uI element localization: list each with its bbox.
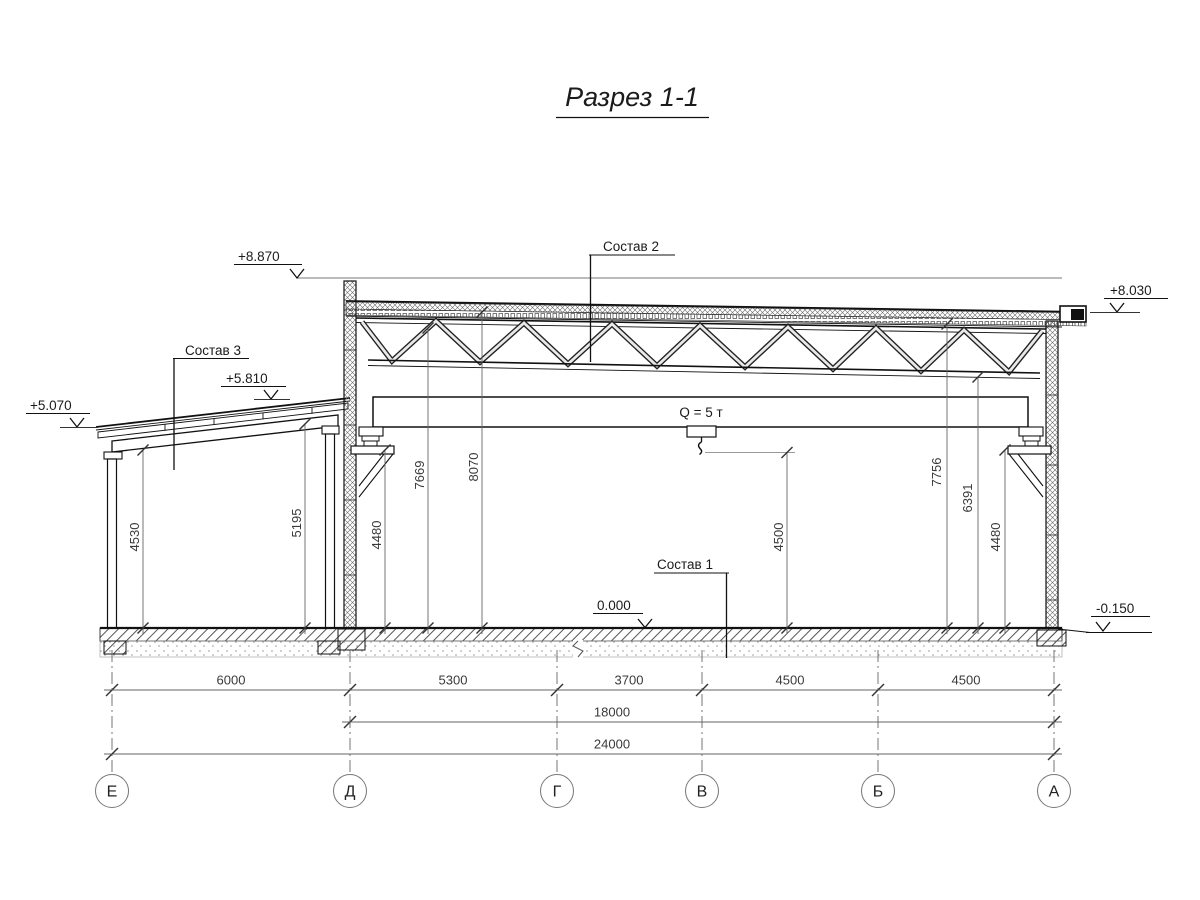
axis-bubble-v: В bbox=[686, 775, 719, 808]
elevation-mark-eave-right: +8.030 bbox=[1090, 283, 1168, 313]
axis-letter-v: В bbox=[697, 784, 708, 801]
vdim-truss-right: 7756 bbox=[929, 458, 944, 487]
vdim-crane-rail-right: 4480 bbox=[988, 523, 1003, 552]
elevation-mark-annex-low: +5.070 bbox=[26, 398, 98, 428]
ground-line-right bbox=[1058, 629, 1152, 633]
elevation-arrow-icon bbox=[264, 390, 278, 399]
axis-bubble-d: Д bbox=[334, 775, 367, 808]
crane-beam: Q = 5 т bbox=[373, 397, 1028, 427]
corbel-left bbox=[359, 454, 393, 497]
roof-truss bbox=[356, 318, 1046, 379]
title-text: Разрез 1-1 bbox=[565, 82, 699, 112]
axis-letter-d: Д bbox=[345, 784, 356, 801]
elevation-eave-value: +8.030 bbox=[1110, 283, 1152, 298]
elevation-ground-value: -0.150 bbox=[1096, 601, 1134, 616]
axis-letter-b: Б bbox=[873, 784, 884, 801]
elevation-arrow-icon bbox=[1096, 622, 1110, 631]
composition-label-3: Состав 3 bbox=[173, 343, 249, 470]
sostav2-label: Состав 2 bbox=[603, 239, 659, 254]
hdim-span-g-v: 3700 bbox=[615, 673, 644, 688]
elevation-mark-floor: 0.000 bbox=[593, 598, 652, 628]
elevation-parapet-value: +8.870 bbox=[238, 249, 280, 264]
axis-letter-e: Е bbox=[107, 784, 118, 801]
hdim-18000: 18000 bbox=[594, 705, 630, 720]
horizontal-dimensions: 6000 5300 3700 4500 4500 18000 24000 bbox=[104, 673, 1062, 761]
vdim-annex-left: 4530 bbox=[127, 523, 142, 552]
vertical-dimensions: 4530 5195 4480 7669 8070 4500 7756 6391 … bbox=[127, 307, 1011, 635]
annex-column-capital-right bbox=[322, 426, 339, 434]
elevation-mark-parapet: +8.870 bbox=[234, 249, 304, 278]
truss-diagonals-inner bbox=[362, 321, 1042, 372]
floor-slab bbox=[100, 628, 1152, 658]
elevation-annex-low-value: +5.070 bbox=[30, 398, 72, 413]
annex-column-capital-left bbox=[104, 452, 122, 459]
axis-bubble-g: Г bbox=[541, 775, 574, 808]
vdim-annex-right: 5195 bbox=[289, 509, 304, 538]
vdim-chord-right: 6391 bbox=[960, 484, 975, 513]
hdim-span-e-d: 6000 bbox=[217, 673, 246, 688]
hdim-span-v-b: 4500 bbox=[776, 673, 805, 688]
drawing-canvas: Разрез 1-1 bbox=[0, 0, 1200, 900]
vdim-crane-rail-left: 4480 bbox=[369, 521, 384, 550]
elevation-arrow-icon bbox=[290, 269, 304, 278]
elevation-arrow-icon bbox=[70, 418, 84, 427]
elevation-annex-high-value: +5.810 bbox=[226, 371, 268, 386]
annex-column-right bbox=[326, 434, 335, 628]
hoist-trolley bbox=[687, 426, 716, 437]
annex-column-left bbox=[108, 459, 117, 628]
sostav3-label: Состав 3 bbox=[185, 343, 241, 358]
annex-structure bbox=[96, 398, 350, 628]
axis-letter-g: Г bbox=[553, 784, 562, 801]
section-drawing: Разрез 1-1 bbox=[0, 0, 1200, 900]
crane-hook bbox=[687, 426, 795, 455]
corbel-right bbox=[1009, 454, 1043, 497]
axis-bubble-e: Е bbox=[96, 775, 129, 808]
axis-bubble-b: Б bbox=[862, 775, 895, 808]
wall-right bbox=[1046, 321, 1058, 628]
elevation-arrow-icon bbox=[1110, 303, 1124, 312]
vdim-hook: 4500 bbox=[771, 523, 786, 552]
elevation-mark-annex-high: +5.810 bbox=[221, 371, 290, 400]
hdim-span-d-g: 5300 bbox=[439, 673, 468, 688]
drawing-title: Разрез 1-1 bbox=[556, 82, 709, 118]
crane-capacity-label: Q = 5 т bbox=[679, 405, 722, 420]
elevation-floor-value: 0.000 bbox=[597, 598, 631, 613]
eave-end-fill bbox=[1071, 309, 1084, 320]
axis-letter-a: А bbox=[1049, 784, 1060, 801]
hook-icon bbox=[699, 442, 702, 455]
hdim-span-b-a: 4500 bbox=[952, 673, 981, 688]
axis-bubble-a: А bbox=[1038, 775, 1071, 808]
elevation-arrow-icon bbox=[638, 619, 652, 628]
sostav1-label: Состав 1 bbox=[657, 557, 713, 572]
elevation-mark-ground: -0.150 bbox=[1091, 601, 1150, 631]
vdim-truss-left: 7669 bbox=[412, 461, 427, 490]
hdim-24000: 24000 bbox=[594, 737, 630, 752]
vdim-roof-left: 8070 bbox=[466, 453, 481, 482]
